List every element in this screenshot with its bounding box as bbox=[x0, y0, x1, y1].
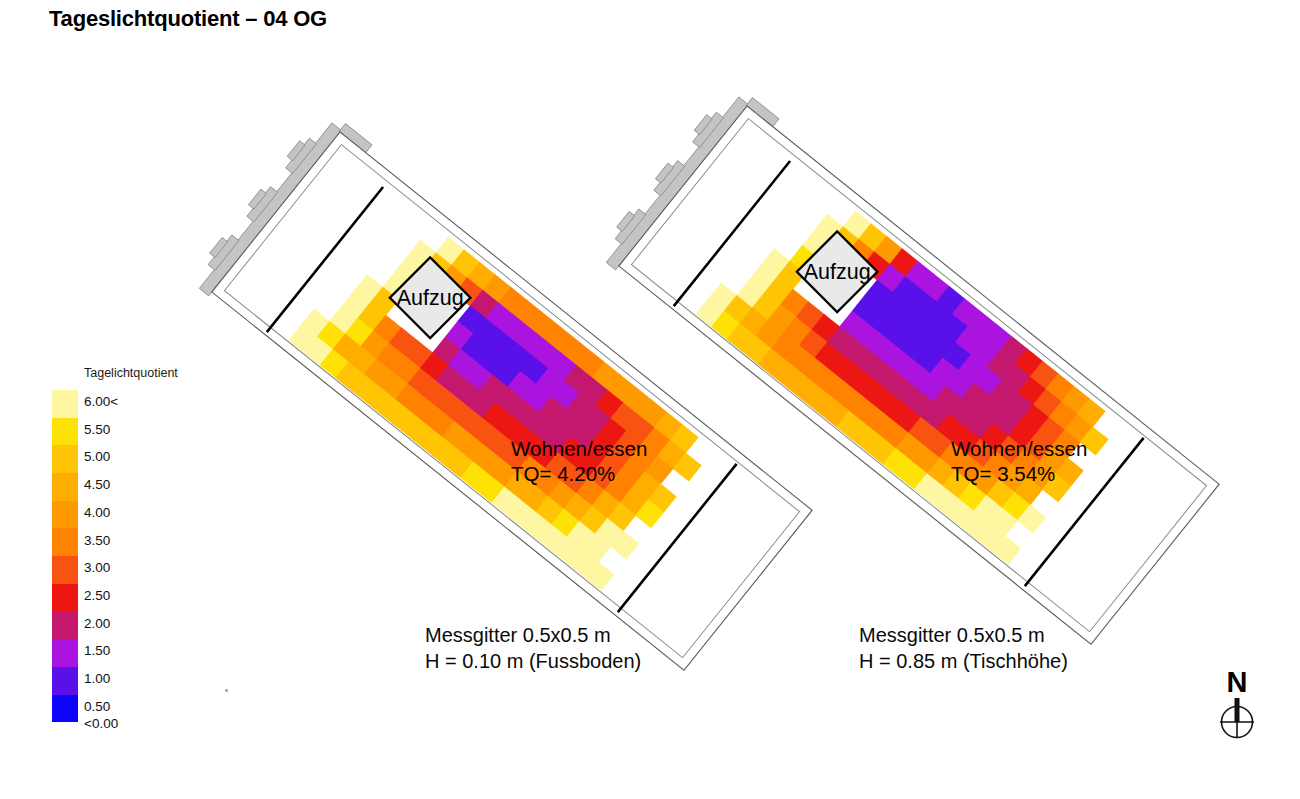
caption-left: Messgitter 0.5x0.5 m H = 0.10 m (Fussbod… bbox=[425, 622, 641, 674]
legend-swatch bbox=[52, 418, 78, 446]
room-tq-value: TQ= 4.20% bbox=[511, 461, 647, 486]
caption-height: H = 0.10 m (Fussboden) bbox=[425, 648, 641, 674]
page-title: Tageslichtquotient – 04 OG bbox=[49, 6, 327, 32]
speck bbox=[225, 689, 228, 692]
room-label-left: Wohnen/essen TQ= 4.20% bbox=[511, 436, 647, 486]
floor-plan-tischhoehe: Aufzug bbox=[592, 69, 1242, 654]
legend-swatch bbox=[52, 584, 78, 612]
caption-grid: Messgitter 0.5x0.5 m bbox=[859, 622, 1068, 648]
room-tq-value: TQ= 3.54% bbox=[951, 461, 1087, 486]
legend-class-label: 3.50 bbox=[84, 533, 110, 548]
figure-canvas: Tageslichtquotient – 04 OG Tagelichtquot… bbox=[0, 0, 1300, 799]
legend-swatch bbox=[52, 390, 78, 418]
elevator-label: Aufzug bbox=[804, 260, 871, 284]
caption-height: H = 0.85 m (Tischhöhe) bbox=[859, 648, 1068, 674]
caption-right: Messgitter 0.5x0.5 m H = 0.85 m (Tischhö… bbox=[859, 622, 1068, 674]
legend-swatch bbox=[52, 473, 78, 501]
legend-swatch bbox=[52, 528, 78, 556]
legend-below-scale-label: <0.00 bbox=[84, 716, 118, 731]
legend-class-label: 3.00 bbox=[84, 560, 110, 575]
room-name: Wohnen/essen bbox=[951, 436, 1087, 461]
legend-class-label: 0.50 bbox=[84, 699, 110, 714]
legend-class-label: 1.00 bbox=[84, 671, 110, 686]
legend-swatch bbox=[52, 612, 78, 640]
room-label-right: Wohnen/essen TQ= 3.54% bbox=[951, 436, 1087, 486]
legend-title: Tagelichtquotient bbox=[84, 366, 178, 380]
legend-class-label: 5.50 bbox=[84, 422, 110, 437]
legend-swatch bbox=[52, 695, 78, 723]
legend-swatch-top bbox=[52, 362, 78, 390]
legend-swatch bbox=[52, 639, 78, 667]
legend-class-label: 2.50 bbox=[84, 588, 110, 603]
north-symbol: N bbox=[1205, 660, 1277, 758]
legend-class-label: 4.50 bbox=[84, 477, 110, 492]
legend-swatch bbox=[52, 667, 78, 695]
legend-class-label: 5.00 bbox=[84, 449, 110, 464]
north-label: N bbox=[1227, 666, 1248, 698]
room-name: Wohnen/essen bbox=[511, 436, 647, 461]
caption-grid: Messgitter 0.5x0.5 m bbox=[425, 622, 641, 648]
legend-swatch-column bbox=[52, 362, 78, 722]
legend-class-label: 4.00 bbox=[84, 505, 110, 520]
legend-class-label: 2.00 bbox=[84, 616, 110, 631]
legend-swatch bbox=[52, 501, 78, 529]
legend-class-label: 6.00< bbox=[84, 394, 118, 409]
legend-swatch bbox=[52, 556, 78, 584]
elevator-label: Aufzug bbox=[397, 286, 464, 310]
legend-swatch bbox=[52, 445, 78, 473]
legend-class-label: 1.50 bbox=[84, 643, 110, 658]
